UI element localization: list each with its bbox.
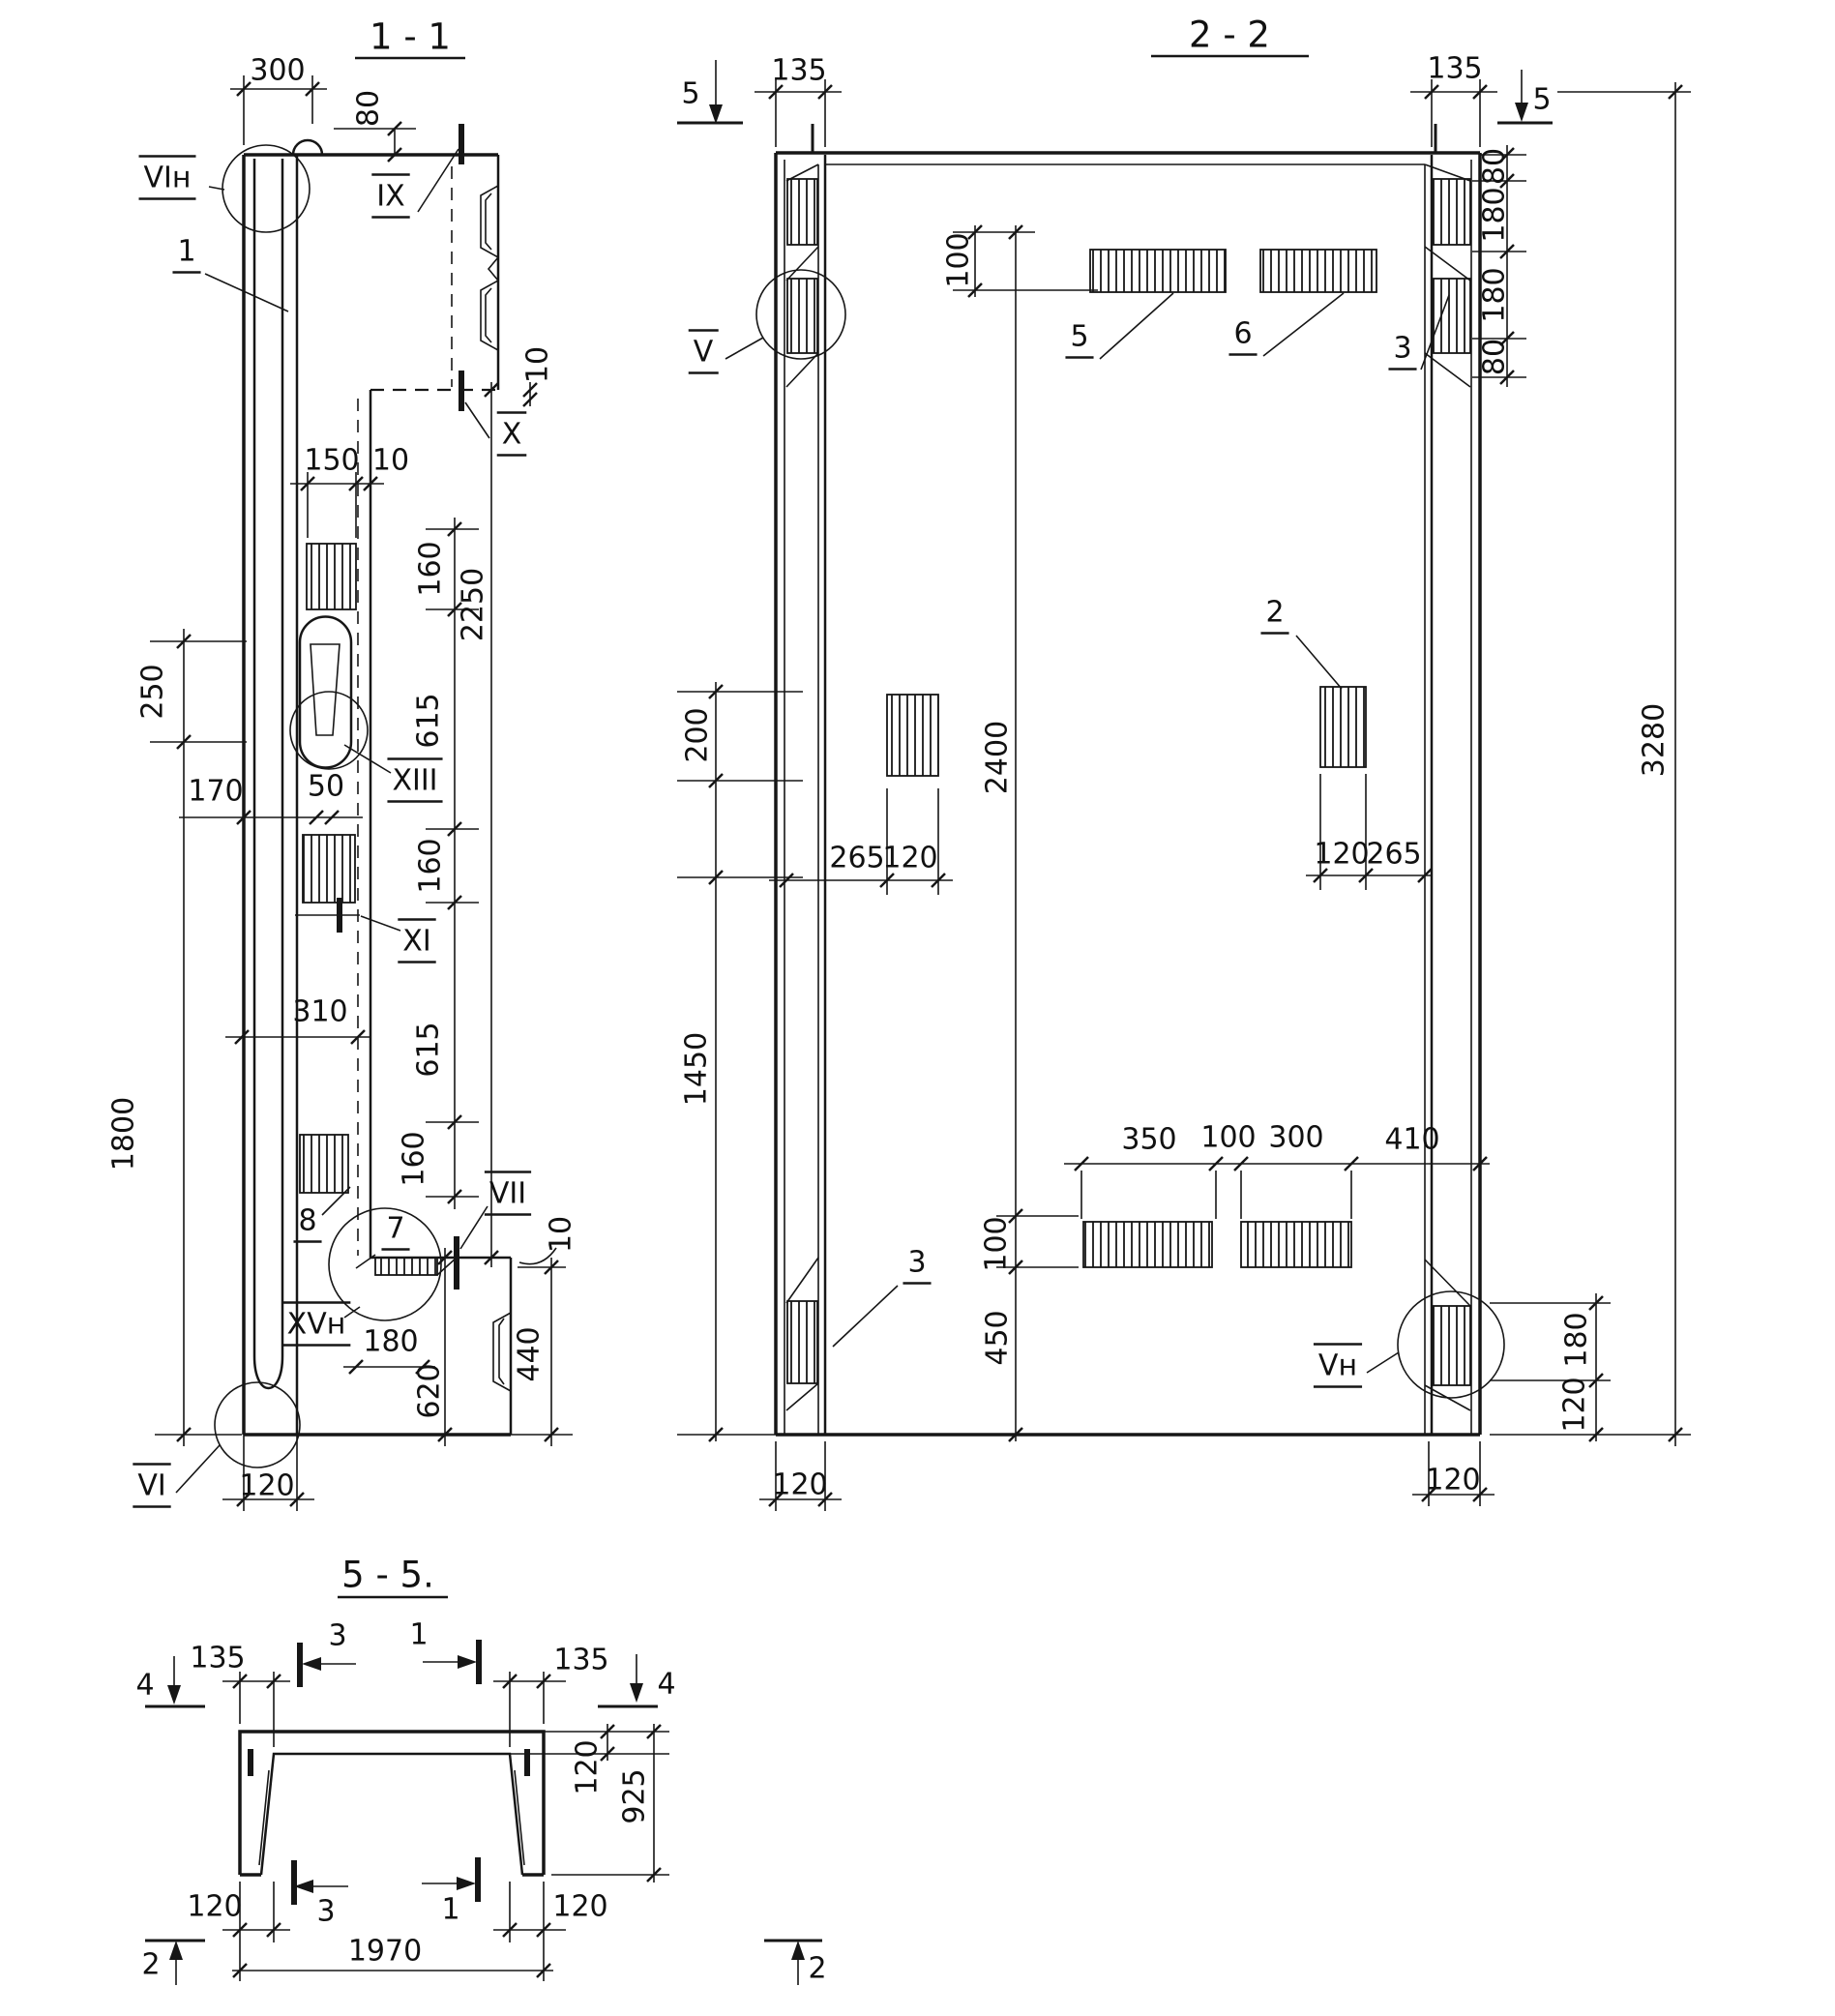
leg-chamfers xyxy=(259,1770,524,1865)
ann-s22-dim-450: 450 xyxy=(981,1310,1015,1365)
view-arrow-4-right xyxy=(630,1683,643,1703)
ann-s55-dim-120-botright: 120 xyxy=(552,1890,607,1924)
cut-arrow-down-right xyxy=(1515,103,1528,122)
ext-lines xyxy=(240,1672,669,1981)
dim-lines xyxy=(716,82,1675,1499)
ann-s55-dim-925: 925 xyxy=(618,1768,652,1823)
ann-s11-label-XVn: XVн xyxy=(287,1308,346,1342)
hatch-console xyxy=(375,1258,437,1275)
ann-s22-dim-100-bot: 100 xyxy=(980,1216,1014,1271)
ann-s22-dim-120-left-mid: 120 xyxy=(882,842,937,875)
ann-s11-dim-180: 180 xyxy=(363,1325,418,1359)
ann-s55-dim-135-right: 135 xyxy=(553,1644,608,1677)
ann-s11-dim-615-a: 615 xyxy=(412,693,446,748)
ann-s22-callout-6: 6 xyxy=(1233,317,1252,351)
section-2-2: 2 - 2 xyxy=(677,15,1691,1512)
section-5-5: 5 - 5. xyxy=(145,1555,822,1986)
ann-s22-callout-3-bot: 3 xyxy=(907,1246,926,1280)
ann-s22-dim-265-right: 265 xyxy=(1366,838,1421,872)
section-1-1: 1 - 1 xyxy=(150,16,573,1512)
ann-s55-dim-120-botleft: 120 xyxy=(187,1890,242,1924)
ann-s22-dim-100-top: 100 xyxy=(942,232,976,287)
ann-s55-marker-1-top: 1 xyxy=(409,1618,428,1652)
ann-s11-label-VII: VII xyxy=(489,1177,526,1211)
ann-s11-dim-160-b: 160 xyxy=(414,838,448,893)
ann-s22-label-Vn: Vн xyxy=(1318,1349,1357,1383)
rib-hatch xyxy=(787,179,817,245)
ann-s22-dim-135-right: 135 xyxy=(1427,52,1482,86)
ann-s11-label-VI: VI xyxy=(137,1469,165,1503)
ann-s55-dim-120-slab: 120 xyxy=(571,1739,605,1794)
ann-s22-callout-3-top: 3 xyxy=(1393,332,1411,366)
ann-s11-label-XI: XI xyxy=(402,925,430,959)
ann-s55-dim-135-left: 135 xyxy=(190,1642,245,1675)
ann-s11-dim-10-web: 10 xyxy=(372,444,409,478)
ann-s22-dim-1450: 1450 xyxy=(680,1032,714,1106)
ann-s22-dim-410: 410 xyxy=(1384,1123,1439,1157)
cut-arrow-down-left xyxy=(709,104,723,124)
cut-arrow-shafts xyxy=(716,60,1522,116)
ann-s55-marker-4-right: 4 xyxy=(657,1668,675,1702)
ann-s11-callout-8: 8 xyxy=(298,1204,316,1238)
ann-s11-dim-160-a: 160 xyxy=(414,541,448,596)
ann-s11-dim-160-c: 160 xyxy=(398,1131,431,1186)
ann-s55-marker-3-top: 3 xyxy=(328,1619,346,1653)
panel-outline xyxy=(244,155,511,1435)
channel-inner xyxy=(261,1754,522,1875)
cut-bars xyxy=(294,1640,479,1905)
ann-s11-label-XIII: XIII xyxy=(392,764,437,798)
mesh-plate-5 xyxy=(1090,250,1226,292)
rib-hatch xyxy=(787,279,817,353)
ann-s55-marker-2-left: 2 xyxy=(141,1948,160,1982)
ann-s22-label-V: V xyxy=(694,336,714,370)
ext-lines xyxy=(677,79,1691,1511)
ann-s11-dim-50: 50 xyxy=(308,770,344,804)
hatch-zone xyxy=(303,835,355,903)
dim-ticks xyxy=(709,85,1682,1506)
cut-arrow-left-top xyxy=(302,1657,321,1671)
view-arrow-2-left xyxy=(169,1941,183,1960)
dim-lines xyxy=(222,1681,654,1971)
ann-s11-dim-1800: 1800 xyxy=(107,1097,141,1171)
ann-s55-dim-1970: 1970 xyxy=(348,1935,422,1969)
hatch-zone xyxy=(307,544,356,609)
lifting-loops xyxy=(813,124,1435,153)
ann-s22-dim-3280: 3280 xyxy=(1638,703,1672,777)
ann-s11-dim-10-step: 10 xyxy=(545,1216,578,1253)
cut-arrow-shafts xyxy=(302,1662,469,1886)
ann-s22-dim-120-botleft: 120 xyxy=(772,1468,827,1502)
ann-s55-marker-2-right: 2 xyxy=(808,1952,826,1986)
ann-s55-marker-4-left: 4 xyxy=(135,1669,154,1703)
ann-s11-callout-7: 7 xyxy=(386,1212,404,1246)
ann-s11-dim-440: 440 xyxy=(513,1326,547,1381)
ann-s22-marker-5-right: 5 xyxy=(1532,83,1551,117)
drawing-page: 1 - 1 xyxy=(0,0,1835,2016)
slot-inner xyxy=(311,644,340,735)
ann-s22-dim-120-botright: 120 xyxy=(1425,1464,1480,1497)
cut-arrow-right-bot xyxy=(457,1877,476,1890)
ann-s22-dim-180-low: 180 xyxy=(1560,1312,1594,1367)
ann-s11-dim-10-top: 10 xyxy=(521,346,555,383)
rib-hatch xyxy=(1433,279,1470,353)
view-arrow-4-left xyxy=(167,1685,181,1705)
detail-circle-XIII xyxy=(290,692,368,769)
view-marker-bars xyxy=(145,1706,822,1941)
leader-lines xyxy=(176,149,489,1493)
leader-lines xyxy=(725,293,1449,1373)
ann-s22-dim-265-left: 265 xyxy=(829,842,884,875)
engineering-drawing: 1 - 1 xyxy=(0,0,1835,2016)
ann-s22-dim-180-b: 180 xyxy=(1478,267,1512,322)
ann-s22-dim-120-right-mid: 120 xyxy=(1314,838,1369,872)
ann-s22-dim-80-b: 80 xyxy=(1478,339,1512,375)
ann-s22-dim-180-a: 180 xyxy=(1478,187,1512,242)
ann-s11-dim-250: 250 xyxy=(136,664,170,719)
dim-ticks xyxy=(233,1675,661,1977)
hatch-zone xyxy=(300,1135,348,1193)
rib-hatch xyxy=(1433,1306,1470,1385)
ann-s11-dim-120: 120 xyxy=(239,1469,294,1503)
ann-s22-dim-135-left: 135 xyxy=(771,54,826,88)
anchor-plate-2 xyxy=(1320,687,1366,767)
rib-hatch xyxy=(787,1301,817,1383)
ann-s22-dim-200: 200 xyxy=(681,707,715,762)
ann-s11-dim-620: 620 xyxy=(413,1363,447,1418)
cut-arrow-right-top xyxy=(458,1655,477,1669)
ann-s11-dim-615-b: 615 xyxy=(412,1022,446,1077)
anchor-plate xyxy=(887,695,938,776)
ann-s22-dim-120-low: 120 xyxy=(1558,1377,1592,1432)
section-1-1-title: 1 - 1 xyxy=(370,16,451,58)
ann-s11-dim-300: 300 xyxy=(250,54,305,88)
ann-s11-dim-2250: 2250 xyxy=(457,568,490,641)
ann-s22-dim-300: 300 xyxy=(1268,1121,1323,1155)
view-arrow-2-right xyxy=(791,1941,805,1960)
ann-s22-dim-80-a: 80 xyxy=(1478,148,1512,185)
ann-s11-dim-170: 170 xyxy=(188,775,243,809)
ann-s11-dim-310: 310 xyxy=(292,995,347,1029)
section-5-5-title: 5 - 5. xyxy=(341,1555,434,1596)
ann-s11-dim-150: 150 xyxy=(304,444,359,478)
ann-s11-label-IX: IX xyxy=(376,180,404,214)
ann-s55-marker-3-bot: 3 xyxy=(316,1895,335,1929)
ann-s11-label-VIn: VIн xyxy=(144,162,192,195)
ann-s11-callout-1: 1 xyxy=(177,235,195,269)
mesh-plate-bot xyxy=(1083,1222,1212,1267)
ann-s22-dim-2400: 2400 xyxy=(981,721,1015,794)
mesh-plate-bot xyxy=(1241,1222,1351,1267)
ann-s22-callout-2: 2 xyxy=(1265,596,1284,630)
section-2-2-title: 2 - 2 xyxy=(1189,15,1270,56)
rebar-bar xyxy=(254,159,282,1388)
ann-s11-dim-80: 80 xyxy=(352,90,386,127)
ann-s22-dim-100-mid: 100 xyxy=(1200,1121,1256,1155)
rib-hatch xyxy=(1433,179,1470,245)
ann-s22-marker-5-left: 5 xyxy=(681,77,699,111)
mesh-plate-6 xyxy=(1260,250,1376,292)
lifting-loop xyxy=(293,140,322,155)
detail-circle-VI xyxy=(215,1382,300,1468)
ann-s55-marker-1-bot: 1 xyxy=(441,1893,459,1927)
ann-s11-label-X: X xyxy=(502,418,522,452)
ann-s22-callout-5: 5 xyxy=(1070,320,1088,354)
ann-s22-dim-350: 350 xyxy=(1121,1123,1176,1157)
